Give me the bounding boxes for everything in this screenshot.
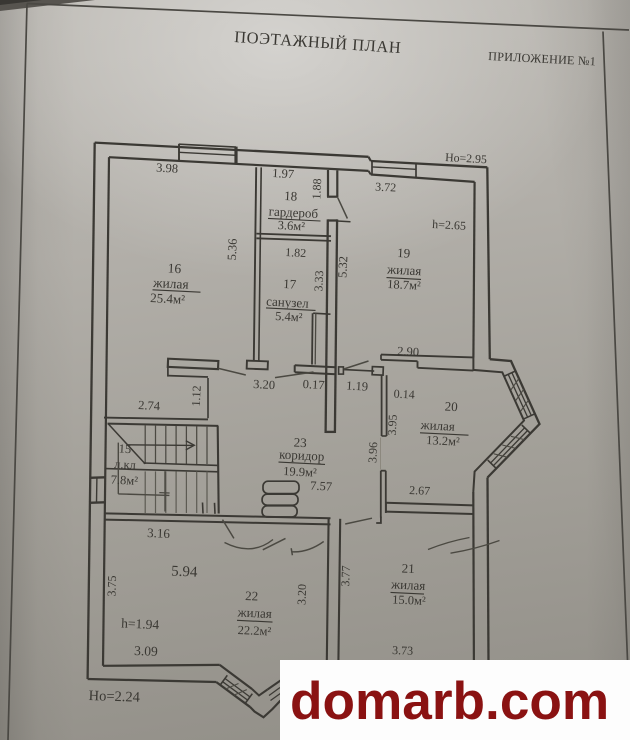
- svg-text:5.36: 5.36: [225, 238, 240, 260]
- svg-text:Но=2.24: Но=2.24: [88, 688, 141, 706]
- svg-text:3.16: 3.16: [147, 525, 171, 541]
- svg-text:5.32: 5.32: [335, 256, 350, 278]
- svg-text:2.90: 2.90: [397, 344, 420, 359]
- svg-text:жилая: жилая: [390, 576, 426, 593]
- svg-text:Но=2.95: Но=2.95: [445, 150, 488, 166]
- svg-text:1.82: 1.82: [285, 245, 307, 260]
- svg-text:18.7м²: 18.7м²: [387, 277, 421, 293]
- svg-text:7.57: 7.57: [310, 479, 333, 494]
- svg-text:22.2м²: 22.2м²: [237, 623, 271, 638]
- svg-text:0.17: 0.17: [302, 377, 325, 392]
- svg-text:3.96: 3.96: [365, 442, 380, 464]
- svg-text:17: 17: [283, 276, 297, 292]
- svg-text:2.74: 2.74: [138, 398, 161, 413]
- svg-text:ПОЭТАЖНЫЙ ПЛАН: ПОЭТАЖНЫЙ ПЛАН: [234, 27, 402, 57]
- svg-text:h=2.65: h=2.65: [432, 217, 466, 233]
- svg-text:3.09: 3.09: [134, 643, 158, 659]
- svg-text:20: 20: [444, 399, 458, 415]
- svg-text:15: 15: [118, 442, 131, 457]
- svg-text:2.67: 2.67: [409, 483, 431, 498]
- svg-text:0.14: 0.14: [393, 387, 415, 402]
- svg-text:л.кл: л.кл: [114, 457, 136, 472]
- svg-text:19.9м²: 19.9м²: [283, 464, 317, 480]
- svg-text:коридор: коридор: [279, 447, 325, 464]
- svg-text:1.97: 1.97: [272, 166, 295, 181]
- svg-text:16: 16: [167, 261, 182, 277]
- svg-text:3.33: 3.33: [311, 270, 326, 292]
- svg-text:3.75: 3.75: [104, 575, 119, 596]
- svg-text:жилая: жилая: [236, 604, 272, 621]
- svg-text:жилая: жилая: [152, 275, 189, 292]
- svg-text:3.20: 3.20: [294, 584, 309, 605]
- svg-text:25.4м²: 25.4м²: [150, 290, 186, 307]
- svg-text:1.88: 1.88: [309, 178, 324, 200]
- svg-text:3.95: 3.95: [385, 414, 400, 436]
- svg-text:1.19: 1.19: [346, 379, 369, 394]
- svg-text:3.77: 3.77: [338, 565, 353, 586]
- svg-text:3.20: 3.20: [253, 377, 276, 392]
- svg-text:ПРИЛОЖЕНИЕ №1: ПРИЛОЖЕНИЕ №1: [488, 49, 597, 68]
- svg-text:5.94: 5.94: [171, 564, 198, 581]
- svg-text:21: 21: [401, 561, 415, 577]
- svg-text:3.73: 3.73: [392, 643, 413, 658]
- svg-text:3.98: 3.98: [156, 161, 179, 176]
- svg-text:7.8м²: 7.8м²: [110, 473, 138, 488]
- svg-text:19: 19: [397, 245, 411, 261]
- svg-text:5.4м²: 5.4м²: [275, 309, 303, 324]
- svg-text:жилая: жилая: [386, 261, 422, 278]
- svg-text:15.0м²: 15.0м²: [392, 593, 426, 608]
- svg-text:3.72: 3.72: [375, 180, 397, 195]
- svg-text:22: 22: [245, 588, 259, 604]
- svg-text:18: 18: [284, 188, 298, 204]
- svg-text:1.12: 1.12: [189, 385, 204, 407]
- svg-text:3.6м²: 3.6м²: [277, 218, 305, 233]
- svg-text:h=1.94: h=1.94: [121, 616, 160, 633]
- svg-text:13.2м²: 13.2м²: [426, 433, 460, 449]
- svg-text:жилая: жилая: [419, 417, 455, 434]
